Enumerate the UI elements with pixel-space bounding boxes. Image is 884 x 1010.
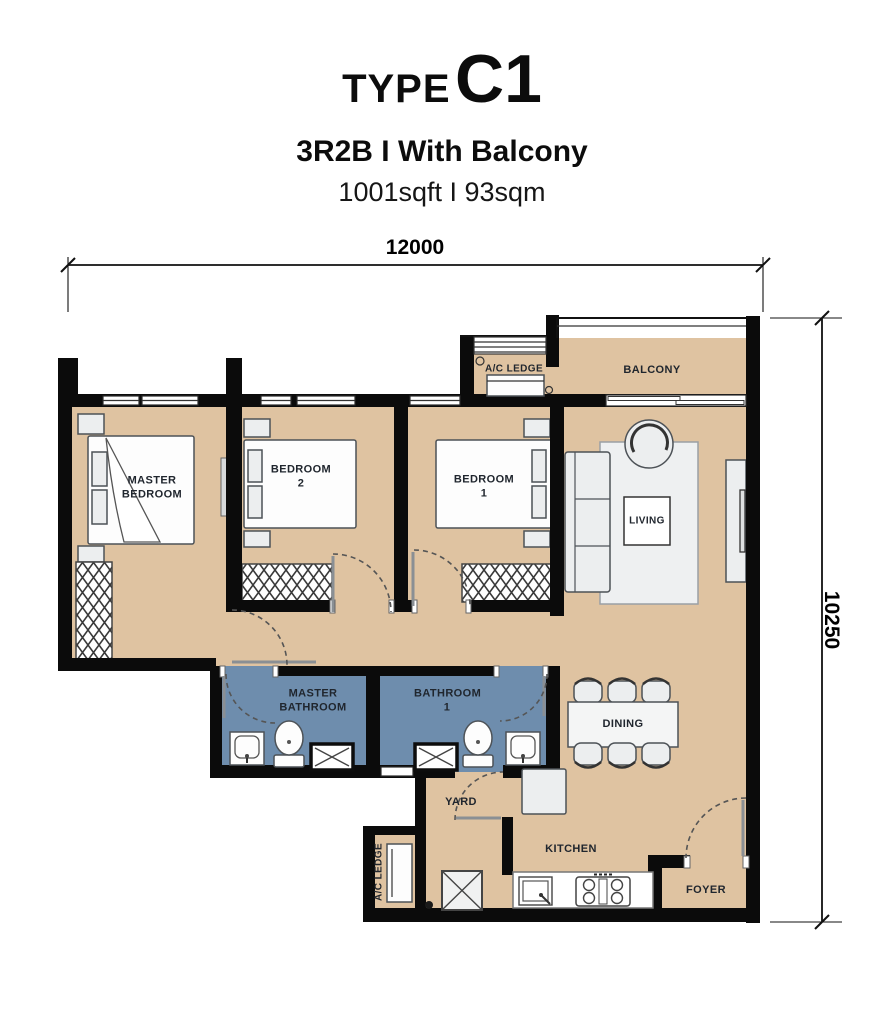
bedroom2-wardrobe-icon — [242, 564, 332, 602]
bathroom1-sink-icon — [506, 732, 540, 765]
window-master-1 — [103, 396, 139, 405]
label-ac-ledge-top: A/C LEDGE — [485, 363, 543, 376]
label-living: LIVING — [629, 515, 665, 528]
fridge-icon — [522, 769, 566, 814]
label-dining: DINING — [603, 717, 644, 731]
balcony-sliding-door — [606, 395, 746, 406]
sofa-icon — [565, 452, 610, 592]
ac-unit-top-icon — [487, 375, 553, 396]
master-bath-sink-icon — [230, 732, 264, 765]
label-balcony: BALCONY — [623, 363, 680, 377]
label-kitchen: KITCHEN — [545, 842, 597, 856]
dimension-width-line — [61, 257, 770, 312]
label-master-bathroom: MASTER BATHROOM — [269, 687, 357, 716]
stove-icon — [576, 875, 630, 907]
dimension-height-label: 10250 — [819, 591, 843, 649]
label-foyer: FOYER — [686, 883, 726, 897]
balcony-railing — [460, 318, 746, 338]
floor-trap-icon — [425, 901, 433, 909]
tv-console-icon — [726, 460, 746, 582]
window-bedroom2-2 — [297, 396, 355, 405]
master-wardrobe-icon — [76, 562, 112, 664]
window-bedroom1 — [410, 396, 460, 405]
floorplan-drawing — [0, 0, 884, 1010]
ac-unit-bottom-icon — [387, 844, 412, 902]
master-bath-shower-icon — [311, 744, 353, 770]
label-yard: YARD — [445, 795, 477, 809]
bathrooms-floor — [216, 666, 554, 772]
label-master-bedroom: MASTER BEDROOM — [110, 474, 194, 503]
label-bedroom-1: BEDROOM 1 — [452, 473, 516, 502]
label-bedroom-2: BEDROOM 2 — [269, 463, 333, 492]
bedroom1-wardrobe-icon — [462, 564, 554, 602]
bathroom1-shower-icon — [415, 744, 457, 770]
label-bathroom-1: BATHROOM 1 — [414, 687, 480, 716]
floorplan-page: TYPE C1 3R2B I With Balcony 1001sqft I 9… — [0, 0, 884, 1010]
round-chair-icon — [625, 420, 673, 468]
dimension-width-label: 12000 — [386, 236, 444, 260]
bathroom-vent-window — [381, 767, 413, 776]
window-master-2 — [142, 396, 198, 405]
bathroom1-toilet-icon — [463, 721, 493, 767]
washing-machine-icon — [442, 871, 482, 910]
window-bedroom2-1 — [261, 396, 291, 405]
master-bath-toilet-icon — [274, 721, 304, 767]
label-ac-ledge-bottom: A/C LEDGE — [373, 843, 386, 901]
